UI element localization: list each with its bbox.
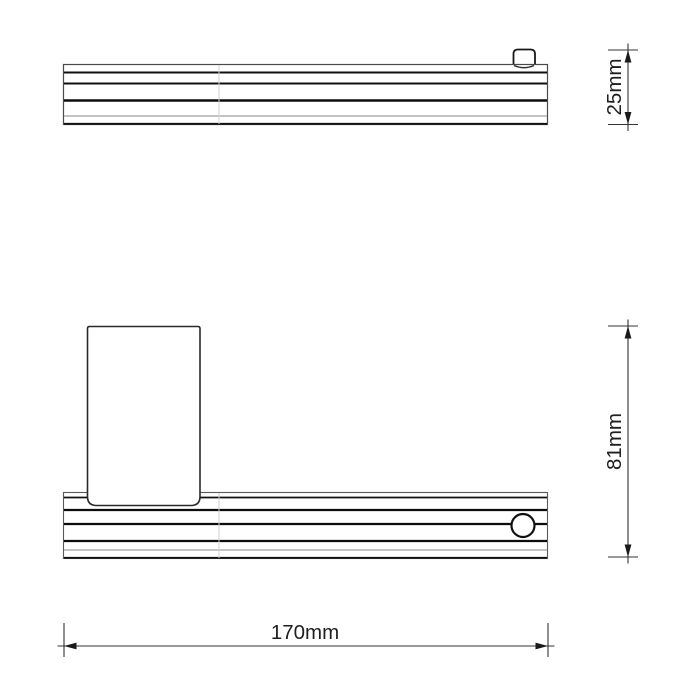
top-view (64, 50, 548, 125)
arrowhead-down (625, 545, 632, 558)
end-cap-hole (512, 514, 535, 537)
holder-plate (88, 327, 201, 506)
dimension-label-height: 81mm (603, 413, 626, 470)
dimension-width: 170mm (58, 621, 555, 657)
dimension-height: 81mm (603, 320, 638, 564)
arrowhead-left (64, 643, 77, 650)
technical-drawing-canvas: 25mm 81mm 170mm (0, 0, 700, 700)
dimension-label-width: 170mm (271, 621, 339, 644)
front-view (64, 327, 548, 559)
technical-drawing-page: 25mm 81mm 170mm (0, 0, 700, 700)
dimension-depth: 25mm (603, 44, 638, 132)
arrowhead-up (625, 326, 632, 339)
arrowhead-right (536, 643, 549, 650)
dimension-label-depth: 25mm (603, 59, 626, 116)
mounting-tab (514, 50, 536, 66)
